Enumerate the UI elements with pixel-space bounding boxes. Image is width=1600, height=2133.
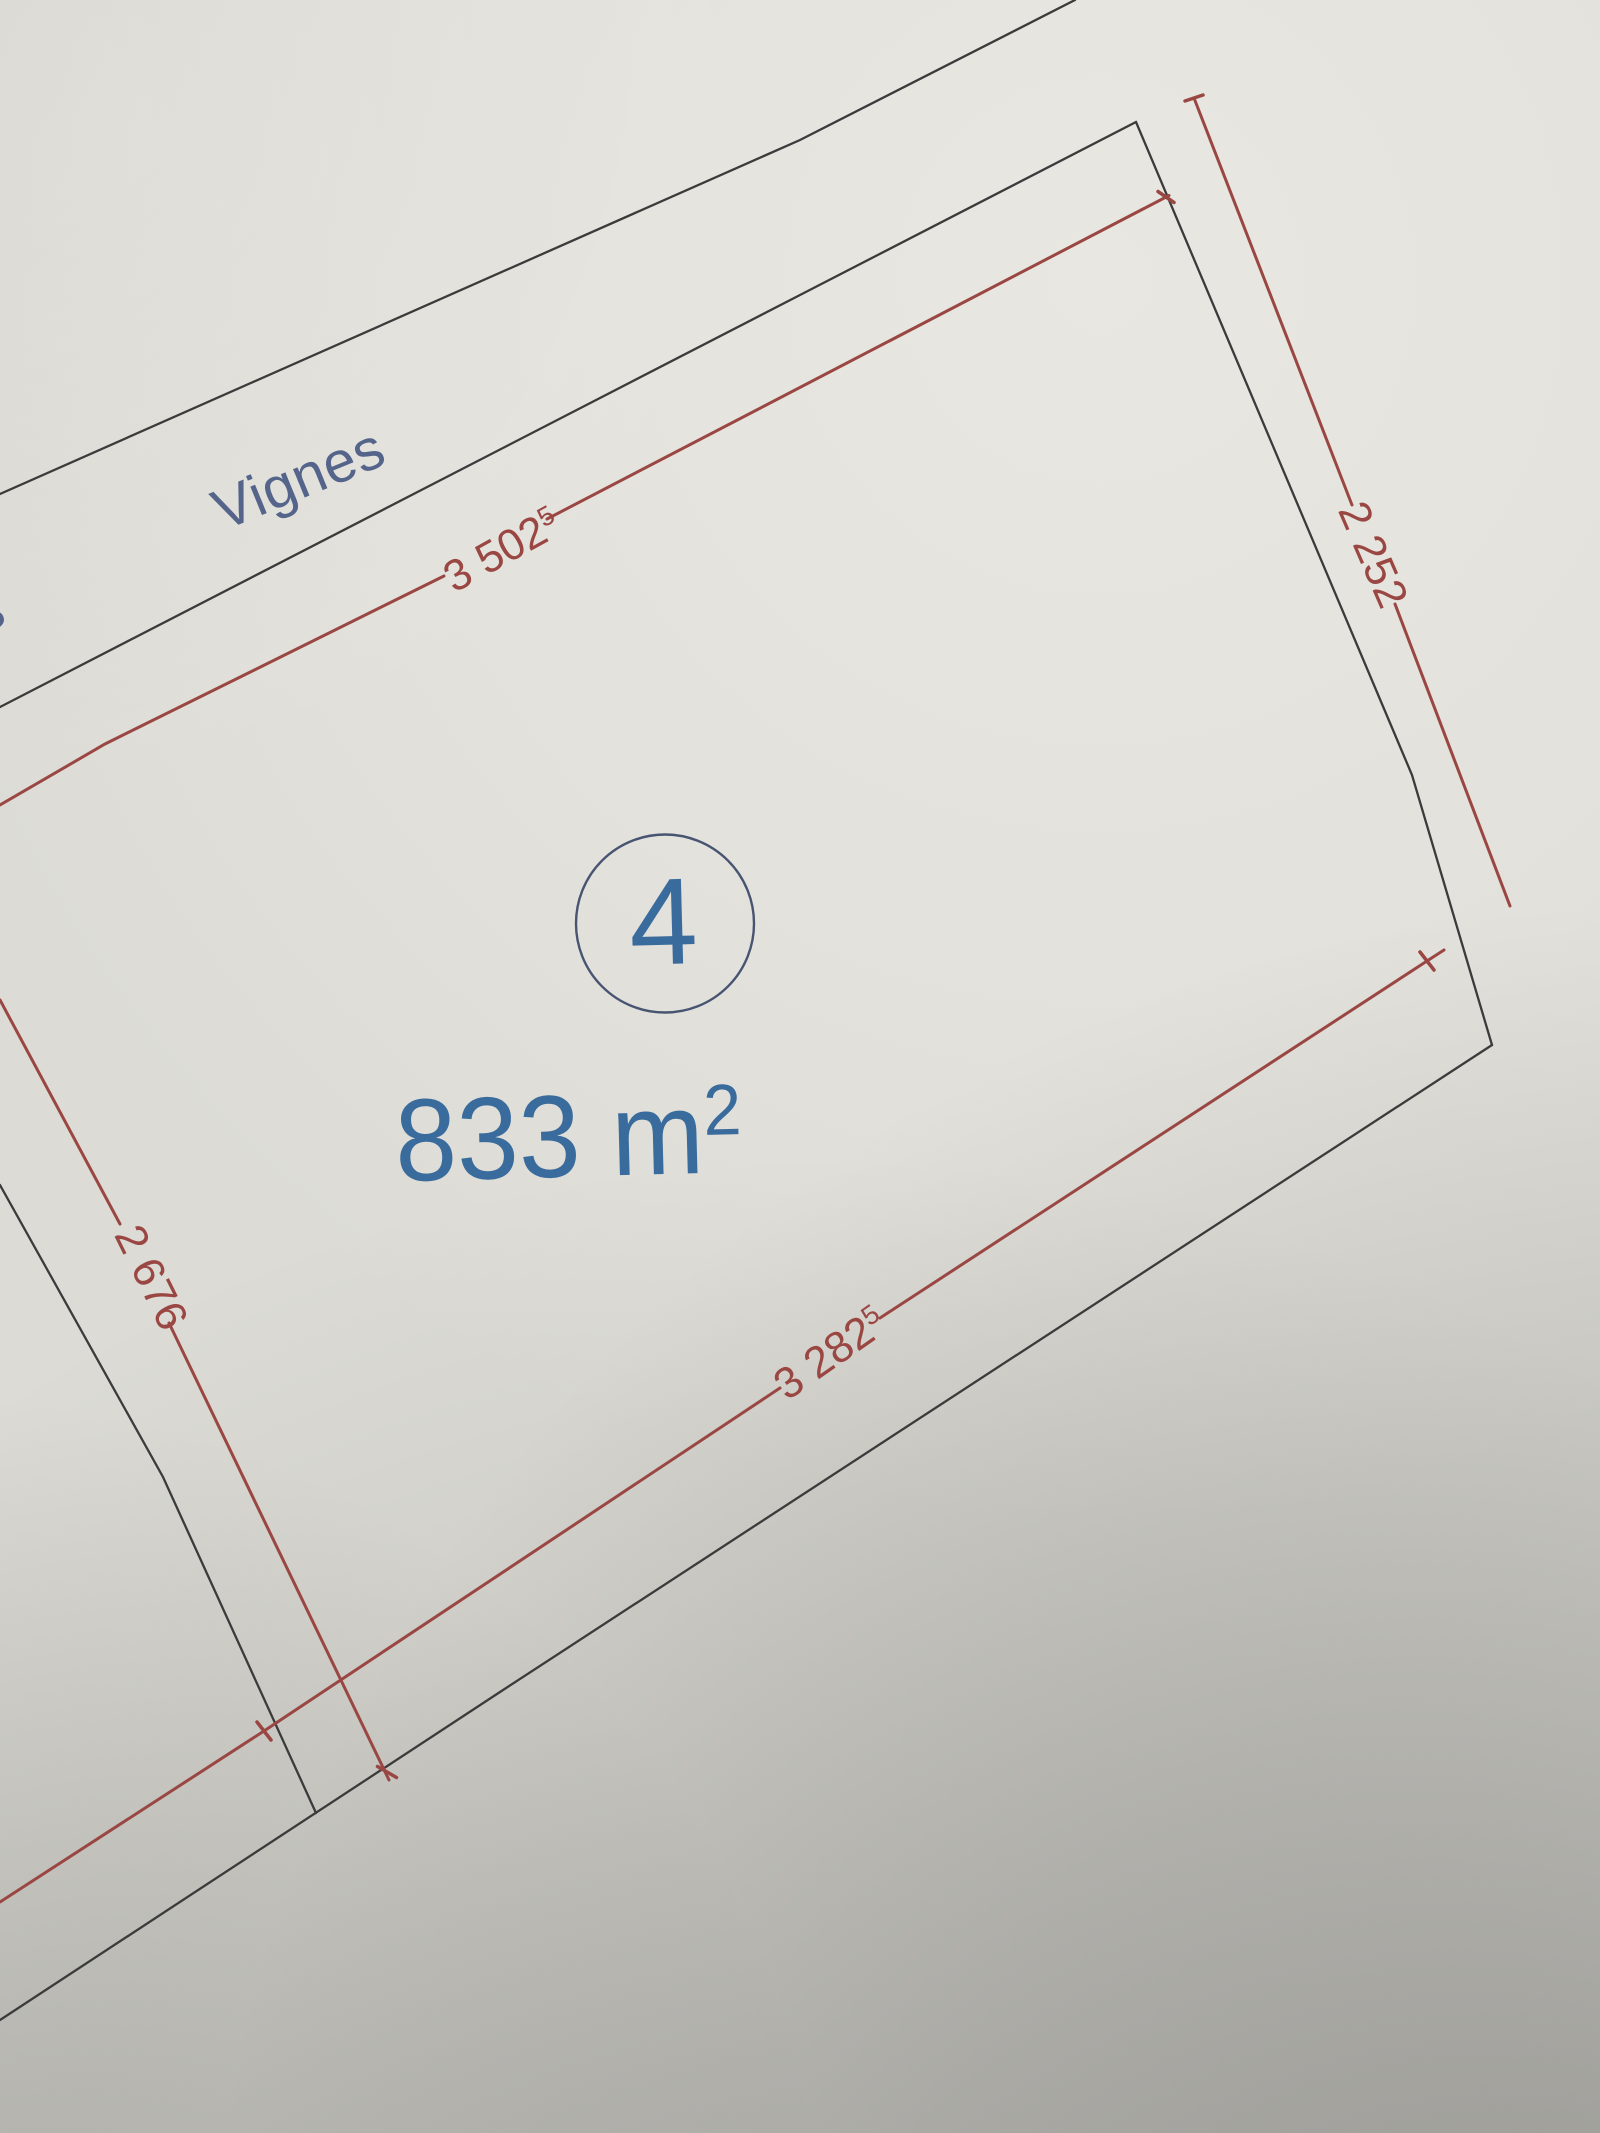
svg-text:4: 4 (627, 853, 699, 992)
svg-text:833 m2: 833 m2 (393, 1067, 743, 1206)
